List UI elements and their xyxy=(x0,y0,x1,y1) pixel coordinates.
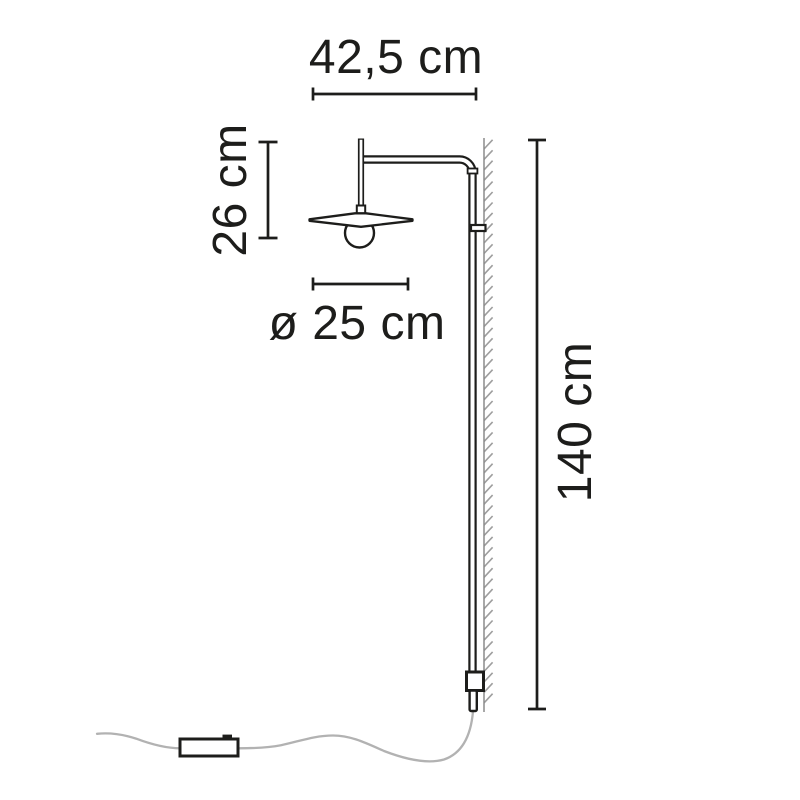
diameter-dimension-line xyxy=(313,278,408,291)
wall-lamp-dimension-diagram: 42,5 cm 26 cm ø 25 cm 140 cm xyxy=(0,0,800,800)
height-dimension-label: 140 cm xyxy=(552,342,600,502)
cord-switch xyxy=(180,735,238,756)
wall-bracket xyxy=(471,225,486,231)
width-dimension-line xyxy=(313,88,476,101)
height-dimension-line xyxy=(528,140,546,709)
power-cord xyxy=(97,712,473,762)
drop-dimension-line xyxy=(259,142,278,238)
diameter-dimension-label: ø 25 cm xyxy=(269,300,446,348)
cord-plug xyxy=(470,691,477,712)
pole-joint-collar xyxy=(468,169,478,174)
diagram-line-art xyxy=(0,0,800,800)
lamp-shade xyxy=(310,213,413,227)
pole-connector-box xyxy=(467,672,484,691)
width-dimension-label: 42,5 cm xyxy=(309,34,483,82)
drop-dimension-label: 26 cm xyxy=(207,123,255,256)
lamp-arm-and-pole xyxy=(362,159,473,676)
